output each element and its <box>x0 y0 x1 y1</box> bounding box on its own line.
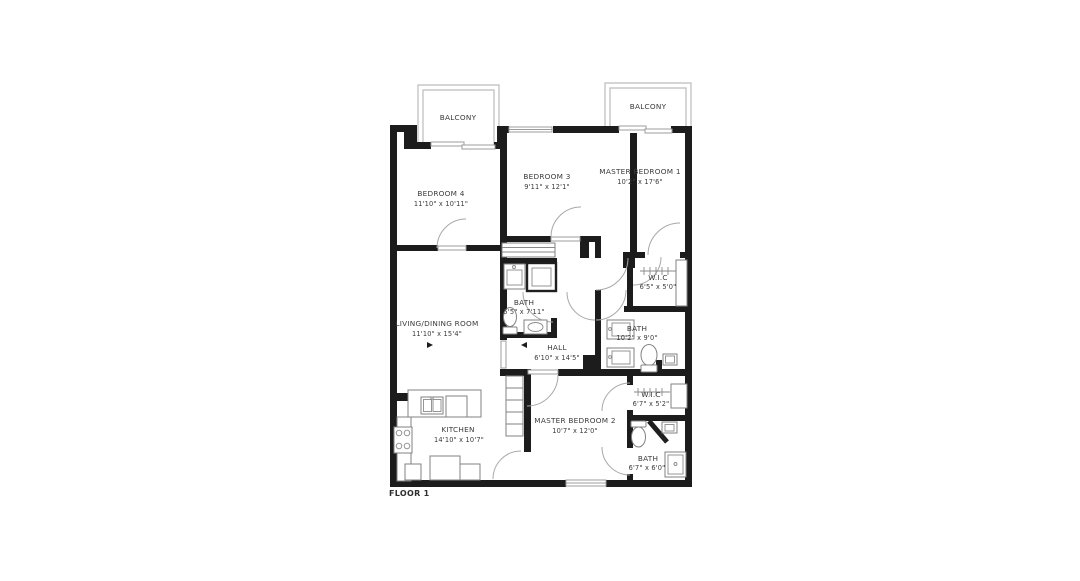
room-label-balcony-left: BALCONY <box>440 113 477 122</box>
bedroom3-door-threshold <box>551 237 580 241</box>
room-label-living-dining: LIVING/DINING ROOM <box>395 319 478 328</box>
room-label-master-bedroom1: MASTER BEDROOM 1 <box>599 167 680 176</box>
bath1-door-arc <box>523 292 553 322</box>
room-label-bedroom3: BEDROOM 3 <box>523 172 570 181</box>
bedroom4-balcony-door <box>431 142 495 149</box>
room-label-wic1: W.I.C <box>648 273 668 282</box>
vanity-sink-icon <box>607 348 634 367</box>
room-dims-bedroom4: 11'10" x 10'11" <box>414 200 468 208</box>
room-label-balcony-right: BALCONY <box>630 102 667 111</box>
room-dims-bath3: 6'7" x 6'0" <box>629 464 666 472</box>
room-dims-wic2: 6'7" x 5'2" <box>633 400 670 408</box>
closet-shelf-icon <box>676 260 687 306</box>
kitchen-island <box>460 464 480 480</box>
room-label-bath2: BATH <box>627 324 647 333</box>
room-dims-wic1: 6'5" x 5'0" <box>640 283 677 291</box>
bedroom4-door-threshold <box>438 246 466 250</box>
room-label-kitchen: KITCHEN <box>441 425 474 434</box>
room-dims-bath1: 5'5" x 7'11" <box>503 308 544 316</box>
bedroom3-door-arc <box>551 207 581 237</box>
toilet-icon <box>641 345 657 373</box>
kitchen-counter <box>408 390 481 417</box>
floor-label: FLOOR 1 <box>389 489 430 498</box>
wic2-door-arc <box>602 383 630 411</box>
room-dims-hall: 6'10" x 14'5" <box>534 354 580 362</box>
room-dims-bath2: 10'2" x 9'0" <box>616 334 657 342</box>
room-dims-master-bedroom1: 10'2" x 17'6" <box>617 178 663 186</box>
hall-door-arc <box>567 292 595 320</box>
room-label-bedroom4: BEDROOM 4 <box>417 189 464 198</box>
room-dims-kitchen: 14'10" x 10'7" <box>434 436 484 444</box>
room-label-hall: HALL <box>547 343 567 352</box>
sink-icon <box>524 320 547 334</box>
living-hall-opening <box>501 341 506 368</box>
shower-icon <box>527 263 556 291</box>
kitchen-door-arc <box>493 451 521 479</box>
master-bedroom2-door-arc <box>527 375 558 406</box>
pantry-shelves <box>506 376 523 436</box>
room-label-bath1: BATH <box>514 298 534 307</box>
room-label-wic2: W.I.C <box>641 390 661 399</box>
room-dims-bedroom3: 9'11" x 12'1" <box>524 183 570 191</box>
master-bedroom2-window <box>566 480 606 486</box>
linen-closet-icon <box>502 243 555 257</box>
bedroom4-door-arc <box>437 219 466 248</box>
washer-icon <box>504 264 525 289</box>
kitchen-island <box>430 456 460 480</box>
kitchen-counter-corner <box>405 464 421 480</box>
floorplan-svg: BALCONY BALCONY BEDROOM 4 11'10" x 10'11… <box>0 0 1080 581</box>
master-bedroom1-balcony-door <box>619 126 672 133</box>
shower-icon <box>665 452 686 477</box>
kitchen-cabinet <box>446 396 467 417</box>
stove-icon <box>394 427 412 453</box>
sink-icon <box>662 422 677 433</box>
room-label-bath3: BATH <box>638 454 658 463</box>
bath1-fixtures <box>502 243 556 334</box>
dimension-ticks <box>427 342 527 348</box>
bedroom3-window <box>509 127 552 132</box>
bath3-door-arc <box>602 447 630 475</box>
floorplan-image: BALCONY BALCONY BEDROOM 4 11'10" x 10'11… <box>0 0 1080 581</box>
room-dims-master-bedroom2: 10'7" x 12'0" <box>552 427 598 435</box>
wic1-door-arc-a <box>648 223 680 255</box>
closet-shelf-icon <box>671 384 687 408</box>
toilet-icon <box>631 421 646 447</box>
master-bedroom2-door-threshold <box>528 370 558 374</box>
kitchen-sink-icon <box>421 397 443 414</box>
room-dims-living-dining: 11'10" x 15'4" <box>412 330 462 338</box>
shower-fixture-icon <box>663 354 677 365</box>
room-label-master-bedroom2: MASTER BEDROOM 2 <box>534 416 615 425</box>
